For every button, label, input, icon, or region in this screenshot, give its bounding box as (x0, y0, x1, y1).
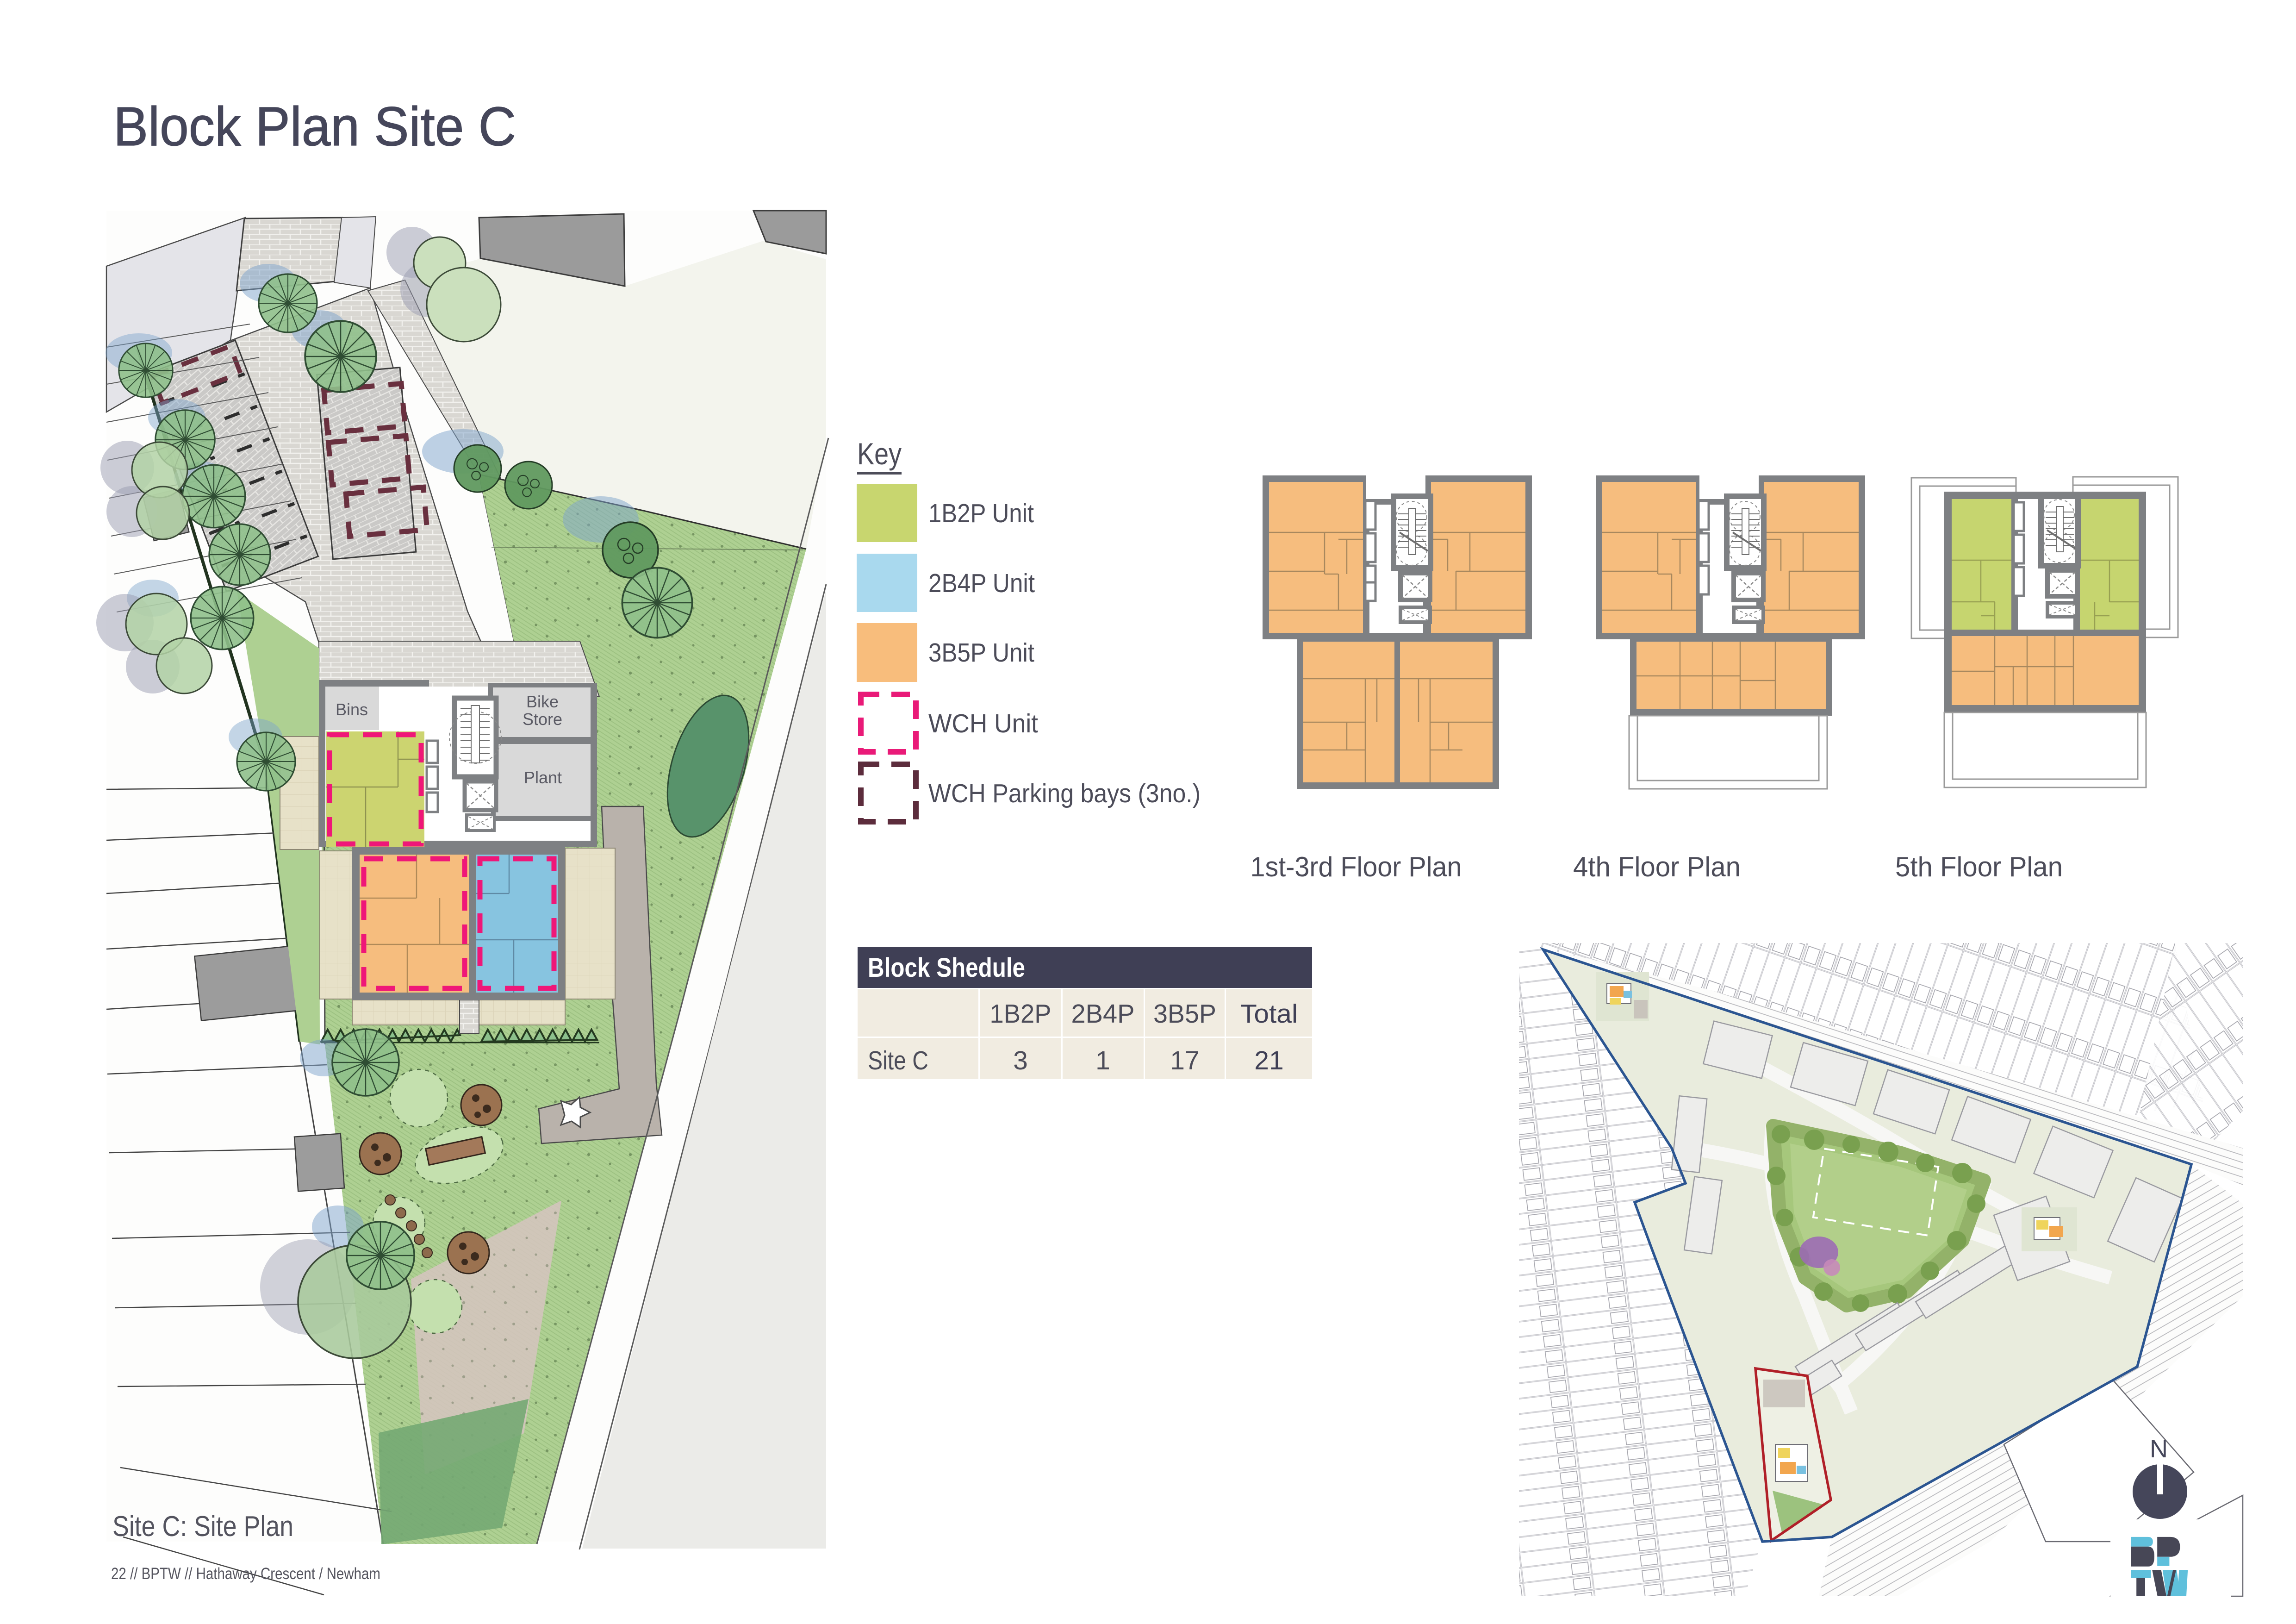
svg-text:4th Floor Plan: 4th Floor Plan (1573, 851, 1741, 882)
svg-text:22 // BPTW // Hathaway Crescen: 22 // BPTW // Hathaway Crescent / Newham (111, 1565, 380, 1583)
svg-text:1st-3rd Floor Plan: 1st-3rd Floor Plan (1251, 851, 1462, 882)
svg-text:3: 3 (1013, 1046, 1028, 1075)
svg-text:3B5P Unit: 3B5P Unit (928, 638, 1034, 668)
svg-text:1B2P Unit: 1B2P Unit (928, 499, 1034, 528)
svg-text:Plant: Plant (524, 768, 562, 787)
svg-text:Bins: Bins (336, 700, 368, 719)
svg-text:Site C: Site C (868, 1046, 928, 1075)
svg-text:Block Shedule: Block Shedule (868, 953, 1025, 983)
svg-text:2B4P: 2B4P (1071, 999, 1135, 1029)
svg-text:Store: Store (523, 710, 562, 729)
svg-text:2B4P Unit: 2B4P Unit (928, 568, 1035, 598)
svg-text:1B2P: 1B2P (990, 999, 1052, 1029)
svg-text:Key: Key (857, 437, 902, 471)
svg-text:Block Plan Site C: Block Plan Site C (113, 96, 516, 157)
svg-text:17: 17 (1170, 1046, 1199, 1075)
svg-text:Site C: Site Plan: Site C: Site Plan (112, 1511, 293, 1543)
svg-text:WCH Parking bays (3no.): WCH Parking bays (3no.) (928, 779, 1201, 808)
svg-text:Total: Total (1240, 999, 1298, 1029)
svg-text:1: 1 (1095, 1046, 1110, 1075)
svg-text:21: 21 (1254, 1046, 1283, 1075)
svg-text:Bike: Bike (526, 692, 559, 711)
svg-text:WCH Unit: WCH Unit (928, 709, 1038, 738)
svg-text:5th Floor Plan: 5th Floor Plan (1895, 851, 2063, 882)
svg-text:3B5P: 3B5P (1153, 999, 1216, 1029)
